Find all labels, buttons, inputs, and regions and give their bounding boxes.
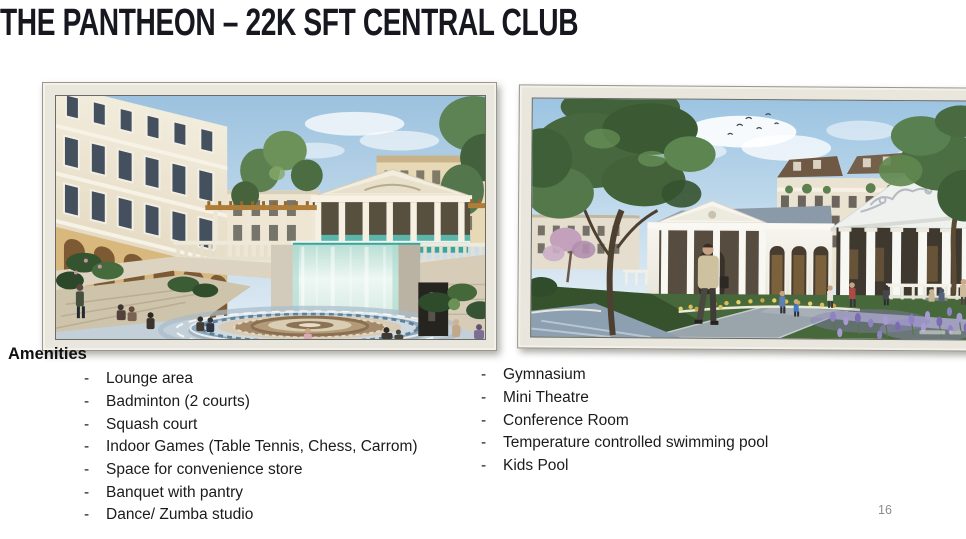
amenity-item: -Indoor Games (Table Tennis, Chess, Carr… bbox=[84, 436, 418, 459]
amenity-item: -Mini Theatre bbox=[481, 387, 768, 410]
dash-bullet: - bbox=[84, 393, 106, 411]
photo-frame-clubhouse bbox=[517, 84, 966, 351]
dash-bullet: - bbox=[481, 434, 503, 452]
amenity-label: Squash court bbox=[106, 416, 197, 434]
amenities-heading: Amenities bbox=[8, 345, 87, 364]
amenity-item: -Gymnasium bbox=[481, 364, 768, 387]
arched-windows bbox=[768, 245, 829, 303]
amenity-item: -Badminton (2 courts) bbox=[84, 391, 418, 414]
amenity-label: Lounge area bbox=[106, 370, 193, 388]
dash-bullet: - bbox=[84, 484, 106, 502]
dash-bullet: - bbox=[481, 389, 503, 407]
dash-bullet: - bbox=[481, 412, 503, 430]
page-number: 16 bbox=[878, 503, 892, 517]
amenity-item: -Banquet with pantry bbox=[84, 481, 418, 504]
dash-bullet: - bbox=[84, 461, 106, 479]
watermark-smudge bbox=[919, 330, 961, 334]
clubhouse-scene bbox=[531, 98, 966, 339]
dash-bullet: - bbox=[84, 370, 106, 388]
amenity-label: Gymnasium bbox=[503, 366, 586, 384]
amenity-item: -Kids Pool bbox=[481, 455, 768, 478]
courtyard-scene bbox=[56, 96, 485, 339]
clubhouse-exterior-render-image bbox=[530, 97, 966, 340]
amenity-label: Dance/ Zumba studio bbox=[106, 506, 253, 524]
amenity-label: Badminton (2 courts) bbox=[106, 393, 250, 411]
amenity-item: -Space for convenience store bbox=[84, 459, 418, 482]
amenity-item: -Dance/ Zumba studio bbox=[84, 504, 418, 527]
dash-bullet: - bbox=[481, 457, 503, 475]
slide-title: THE PANTHEON – 22K SFT CENTRAL CLUB bbox=[0, 2, 578, 45]
photo-frame-courtyard bbox=[42, 82, 497, 351]
amenity-label: Temperature controlled swimming pool bbox=[503, 434, 768, 452]
amenity-label: Conference Room bbox=[503, 412, 629, 430]
dash-bullet: - bbox=[84, 438, 106, 456]
amenity-item: -Temperature controlled swimming pool bbox=[481, 432, 768, 455]
amenity-label: Space for convenience store bbox=[106, 461, 302, 479]
amenity-item: -Squash court bbox=[84, 413, 418, 436]
amenity-item: -Lounge area bbox=[84, 368, 418, 391]
amenity-label: Mini Theatre bbox=[503, 389, 589, 407]
courtyard-waterfall-render-image bbox=[55, 95, 486, 340]
dash-bullet: - bbox=[84, 416, 106, 434]
dash-bullet: - bbox=[84, 506, 106, 524]
amenity-item: -Conference Room bbox=[481, 409, 768, 432]
amenities-list-left: -Lounge area -Badminton (2 courts) -Squa… bbox=[84, 368, 418, 527]
dash-bullet: - bbox=[481, 366, 503, 384]
amenity-label: Banquet with pantry bbox=[106, 484, 243, 502]
amenity-label: Kids Pool bbox=[503, 457, 568, 475]
amenities-list-right: -Gymnasium -Mini Theatre -Conference Roo… bbox=[481, 364, 768, 477]
amenity-label: Indoor Games (Table Tennis, Chess, Carro… bbox=[106, 438, 418, 456]
